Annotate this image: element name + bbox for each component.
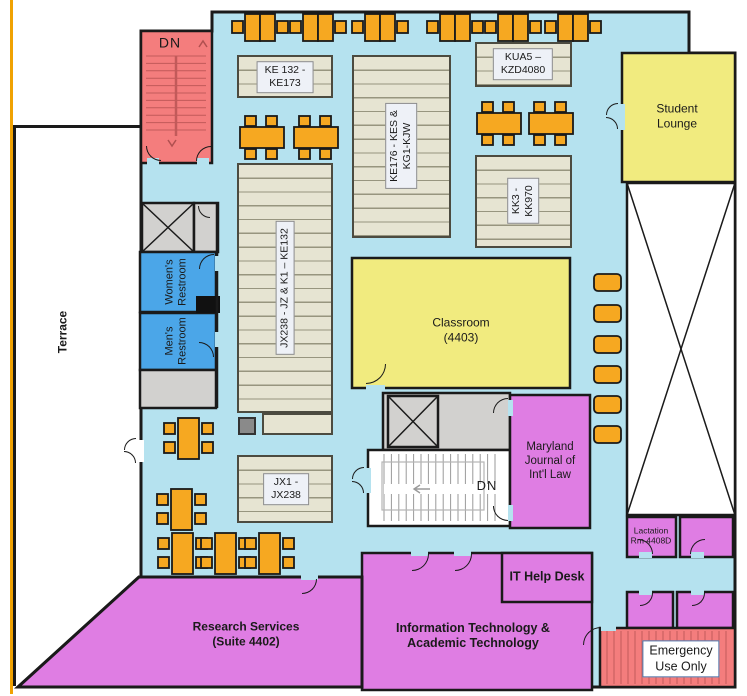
chair (157, 494, 168, 505)
chair (482, 102, 493, 112)
classroom-label: Classroom (4403) (432, 315, 489, 344)
student-lounge-label: Student Lounge (656, 101, 697, 130)
study-carrel (594, 426, 621, 443)
stairwell-center-label: DN (477, 478, 498, 494)
office-room (677, 592, 733, 628)
study-carrel (594, 336, 621, 353)
chair (503, 135, 514, 145)
stairwell-nw-label: DN (159, 34, 181, 51)
chair (352, 21, 363, 33)
table (259, 533, 280, 574)
office-room (680, 517, 733, 557)
door-gap (601, 626, 616, 631)
table (513, 14, 528, 41)
stack-label-kk3: KK3 - KK970 (507, 178, 539, 224)
chair (283, 557, 294, 568)
table (529, 113, 573, 134)
womens-restroom-label: Women's Restroom (164, 258, 191, 306)
chair (320, 149, 331, 159)
chair (545, 21, 556, 33)
door-gap (620, 104, 625, 130)
stack-label-kua5: KUA5 – KZD4080 (493, 48, 553, 80)
chair (164, 442, 175, 453)
chair (299, 149, 310, 159)
it-dept-label: Information Technology & Academic Techno… (396, 621, 550, 652)
door-gap (508, 400, 513, 416)
floor-plan: DN DN Terrace Women's Restroom Men's Res… (0, 0, 747, 696)
chair (245, 557, 256, 568)
table (558, 14, 573, 41)
door-gap (215, 256, 220, 271)
chair (195, 494, 206, 505)
chair (427, 21, 438, 33)
chair (232, 21, 243, 33)
chair (485, 21, 496, 33)
door-gap (366, 385, 385, 391)
chair (299, 116, 310, 126)
table (245, 14, 260, 41)
lactation-label: Lactation Rm 4408D (631, 526, 672, 547)
chair (164, 423, 175, 434)
terrace-label: Terrace (56, 311, 71, 353)
research-services-room (18, 577, 362, 687)
research-services-label: Research Services (Suite 4402) (193, 619, 300, 648)
chair (158, 557, 169, 568)
stack-label-jx238: JX238 - JZ & K1 – KE132 (276, 221, 295, 355)
terrace-door-gap (138, 440, 144, 462)
chair (277, 21, 288, 33)
chair (320, 116, 331, 126)
chair (195, 513, 206, 524)
table (294, 127, 338, 148)
table (215, 533, 236, 574)
study-carrel (594, 396, 621, 413)
chair (590, 21, 601, 33)
study-carrel (594, 305, 621, 322)
kiosk (238, 417, 256, 435)
chair (245, 538, 256, 549)
it-help-desk-label: IT Help Desk (509, 569, 584, 584)
chair (290, 21, 301, 33)
table (455, 14, 470, 41)
door-gap (215, 332, 220, 347)
book-stack (262, 413, 333, 435)
chair (266, 149, 277, 159)
chair (472, 21, 483, 33)
chair (266, 116, 277, 126)
table (178, 418, 199, 459)
chair (397, 21, 408, 33)
door-gap (366, 468, 371, 493)
utility-room (140, 370, 216, 408)
table (318, 14, 333, 41)
table (380, 14, 395, 41)
chair (202, 442, 213, 453)
chair (555, 102, 566, 112)
chair (158, 538, 169, 549)
door-gap (508, 505, 513, 521)
chair (245, 116, 256, 126)
chair (335, 21, 346, 33)
table (573, 14, 588, 41)
stack-label-jx1: JX1 - JX238 (263, 473, 309, 505)
study-carrel (594, 366, 621, 383)
table (260, 14, 275, 41)
table (440, 14, 455, 41)
chair (534, 135, 545, 145)
chair (482, 135, 493, 145)
chair (283, 538, 294, 549)
stack-label-ke176: KE176 - KES & KG1-KJW (385, 103, 417, 189)
mens-restroom-label: Men's Restroom (164, 317, 191, 365)
table (498, 14, 513, 41)
table (240, 127, 284, 148)
table (477, 113, 521, 134)
table (303, 14, 318, 41)
table (171, 489, 192, 530)
chair (157, 513, 168, 524)
chair (201, 538, 212, 549)
chair (503, 102, 514, 112)
chair (534, 102, 545, 112)
chair (555, 135, 566, 145)
chair (202, 423, 213, 434)
chair (530, 21, 541, 33)
chair (201, 557, 212, 568)
chair (245, 149, 256, 159)
maryland-journal-label: Maryland Journal of Int'l Law (525, 440, 576, 482)
table (365, 14, 380, 41)
emergency-label: Emergency Use Only (642, 640, 719, 677)
stack-label-ke132: KE 132 - KE173 (257, 61, 314, 93)
study-carrel (594, 274, 621, 291)
table (172, 533, 193, 574)
